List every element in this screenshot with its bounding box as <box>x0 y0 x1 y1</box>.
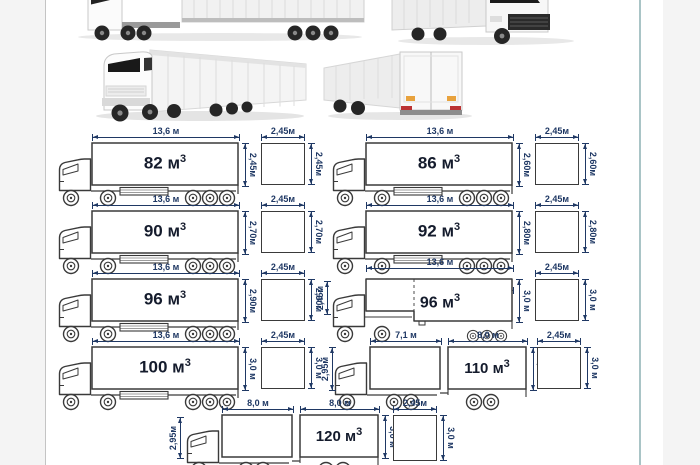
width-dim: 2,45м <box>537 338 581 345</box>
height-dim: 3,0 м <box>584 347 591 389</box>
left-page-rule <box>45 0 46 465</box>
volume-label: 110 м3 <box>448 358 526 378</box>
height-dim: 3,0 м <box>308 347 315 389</box>
width-dim: 2,45м <box>535 270 579 277</box>
length-dim: 13,6 м <box>92 270 240 277</box>
truck-dimensions-infographic: 13,6 м 82 м3 2,45м 2,45м 2,45м 13,6 м 86… <box>0 0 700 465</box>
length-dim: 13,6 м <box>366 134 514 141</box>
section-square <box>261 143 305 185</box>
height-dim: 3,0 м <box>440 415 447 461</box>
height-dim: 2,80м <box>516 211 523 255</box>
width-dim: 2,45м <box>261 134 305 141</box>
left-outer-background <box>0 0 45 465</box>
volume-label: 96 м3 <box>102 289 228 310</box>
cross-section-86: 2,45м 2,60м <box>535 125 605 195</box>
height-dim: 3,0 м <box>530 347 537 391</box>
width-dim: 2,45м <box>393 406 437 413</box>
truck-rear-quarter-photo <box>322 44 480 122</box>
volume-label: 90 м3 <box>102 221 228 242</box>
height-dim: 3,0 м <box>382 415 389 459</box>
height-dim: 2,60м <box>582 143 589 185</box>
truck-box-height-dim: 2,95м <box>329 347 336 391</box>
truck-three-quarter-photo <box>88 40 316 122</box>
width-dim: 2,45м <box>261 338 305 345</box>
section-square <box>261 279 305 321</box>
height-label: 2,45м <box>248 153 258 177</box>
volume-label: 92 м3 <box>376 221 502 242</box>
section-square <box>537 347 581 389</box>
height-dim: 2,60м <box>516 143 523 187</box>
length-dim: 13,6 м <box>92 134 240 141</box>
right-outer-background <box>663 0 700 465</box>
height-dim: 2,45м <box>242 143 249 187</box>
height-dim: 3,0 м <box>242 347 249 391</box>
volume-label: 82 м3 <box>102 153 228 174</box>
cross-section-96-jumbo: 2,45м 3,0 м <box>535 261 605 331</box>
section-square <box>535 279 579 321</box>
trailer-dim: 8,0 м <box>300 406 380 413</box>
width-dim: 2,45м <box>261 202 305 209</box>
cross-section-92: 2,45м 2,80м <box>535 193 605 263</box>
truck-box-dim: 8,0 м <box>222 406 294 413</box>
height-dim: 3,0 м <box>516 279 523 323</box>
height-dim: 2,45м <box>308 143 315 185</box>
height-dim: 2,90м <box>308 279 315 321</box>
height-dim: 3,0 м <box>582 279 589 321</box>
height-dim: 2,70м <box>308 211 315 253</box>
section-square <box>261 211 305 253</box>
trailer-dim: 8,0 м <box>448 338 528 345</box>
truck-diagram-120: 8,0 м 8,0 м 120 м3 3,0 м 2,95м <box>168 397 398 465</box>
truck-front-quarter-photo <box>390 0 582 46</box>
right-page-rule <box>639 0 641 465</box>
cross-section-90: 2,45м 2,70м <box>261 193 331 263</box>
section-square <box>393 415 437 461</box>
volume-label: 100 м3 <box>102 357 228 378</box>
cross-section-82: 2,45м 2,45м <box>261 125 331 195</box>
width-dim: 2,45м <box>535 134 579 141</box>
length-label: 13,6 м <box>153 126 180 136</box>
width-dim: 2,45м <box>261 270 305 277</box>
width-dim: 2,45м <box>535 202 579 209</box>
front-height-dim: 2,45м <box>324 281 331 315</box>
cross-section-120: 2,45м 3,0 м <box>393 397 463 465</box>
height-dim: 2,70м <box>242 211 249 255</box>
volume-label: 120 м3 <box>300 426 378 446</box>
truck-side-view-photo <box>70 0 370 42</box>
section-square <box>535 211 579 253</box>
length-dim: 13,6 м <box>92 338 240 345</box>
truck-box-dim: 7,1 м <box>370 338 442 345</box>
truck-box-height-dim: 2,95м <box>177 417 184 459</box>
height-dim: 2,80м <box>582 211 589 253</box>
section-square <box>535 143 579 185</box>
height-dim: 2,90м <box>242 279 249 323</box>
length-dim: 13,6 м <box>366 202 514 209</box>
length-dim: 13,6 м <box>92 202 240 209</box>
volume-label: 86 м3 <box>376 153 502 174</box>
cross-section-110: 2,45м 3,0 м <box>537 329 607 399</box>
section-square <box>261 347 305 389</box>
volume-label: 96 м3 <box>390 292 490 313</box>
length-dim: 13,6 м <box>366 265 514 272</box>
